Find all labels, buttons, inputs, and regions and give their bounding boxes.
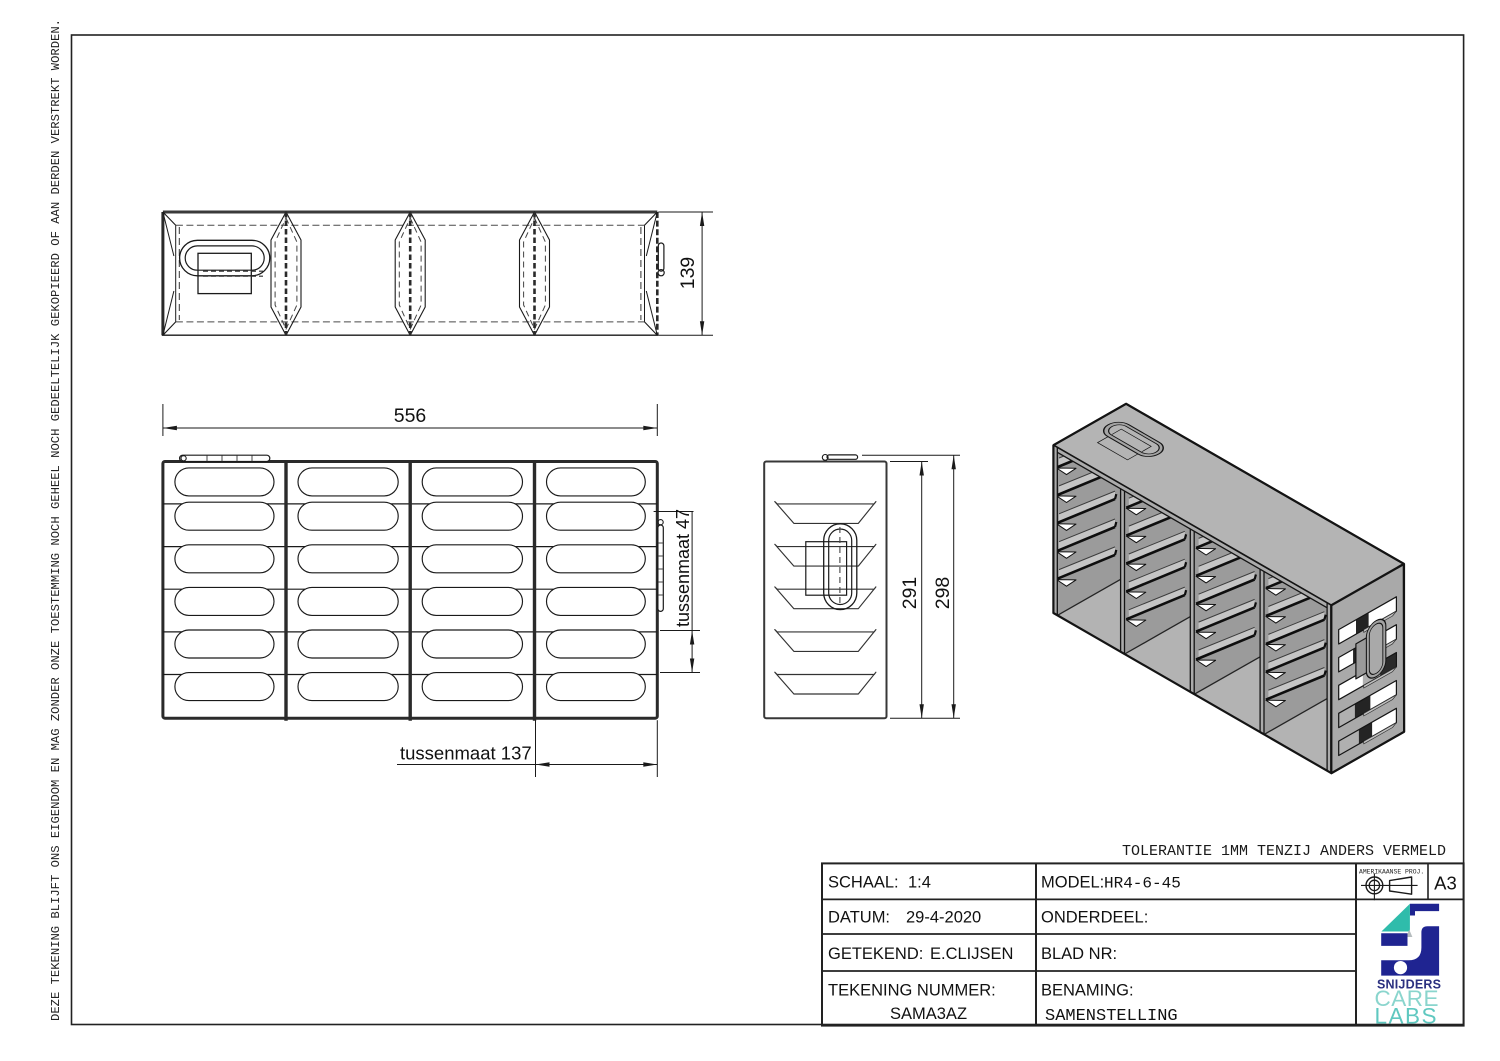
- svg-text:29-4-2020: 29-4-2020: [906, 909, 981, 927]
- svg-text:tussenmaat 137: tussenmaat 137: [400, 743, 532, 764]
- svg-text:SAMENSTELLING: SAMENSTELLING: [1045, 1007, 1178, 1026]
- svg-text:tussenmaat 47: tussenmaat 47: [673, 509, 693, 627]
- svg-text:BENAMING:: BENAMING:: [1041, 982, 1134, 1000]
- svg-text:DATUM:: DATUM:: [828, 909, 890, 927]
- svg-text:MODEL:: MODEL:: [1041, 874, 1104, 892]
- svg-text:DEZE TEKENING BLIJFT ONS EIGEN: DEZE TEKENING BLIJFT ONS EIGENDOM EN MAG…: [49, 19, 63, 1021]
- svg-text:TEKENING NUMMER:: TEKENING NUMMER:: [828, 982, 996, 1000]
- svg-text:ONDERDEEL:: ONDERDEEL:: [1041, 909, 1148, 927]
- svg-text:BLAD NR:: BLAD NR:: [1041, 945, 1117, 963]
- svg-text:A3: A3: [1434, 873, 1457, 894]
- svg-text:298: 298: [932, 577, 954, 610]
- svg-text:SAMA3AZ: SAMA3AZ: [890, 1005, 967, 1023]
- svg-text:HR4-6-45: HR4-6-45: [1104, 875, 1181, 893]
- svg-text:GETEKEND:: GETEKEND:: [828, 945, 923, 963]
- svg-text:556: 556: [394, 405, 427, 427]
- svg-text:TOLERANTIE 1MM TENZIJ ANDERS V: TOLERANTIE 1MM TENZIJ ANDERS VERMELD: [1122, 843, 1446, 860]
- svg-text:SCHAAL:: SCHAAL:: [828, 874, 899, 892]
- svg-text:LABS: LABS: [1375, 1004, 1439, 1029]
- svg-text:AMERIKAANSE PROJ.: AMERIKAANSE PROJ.: [1359, 869, 1424, 876]
- svg-text:139: 139: [677, 257, 699, 290]
- svg-text:291: 291: [899, 577, 921, 610]
- svg-text:E.CLIJSEN: E.CLIJSEN: [930, 945, 1013, 963]
- svg-text:1:4: 1:4: [908, 874, 931, 892]
